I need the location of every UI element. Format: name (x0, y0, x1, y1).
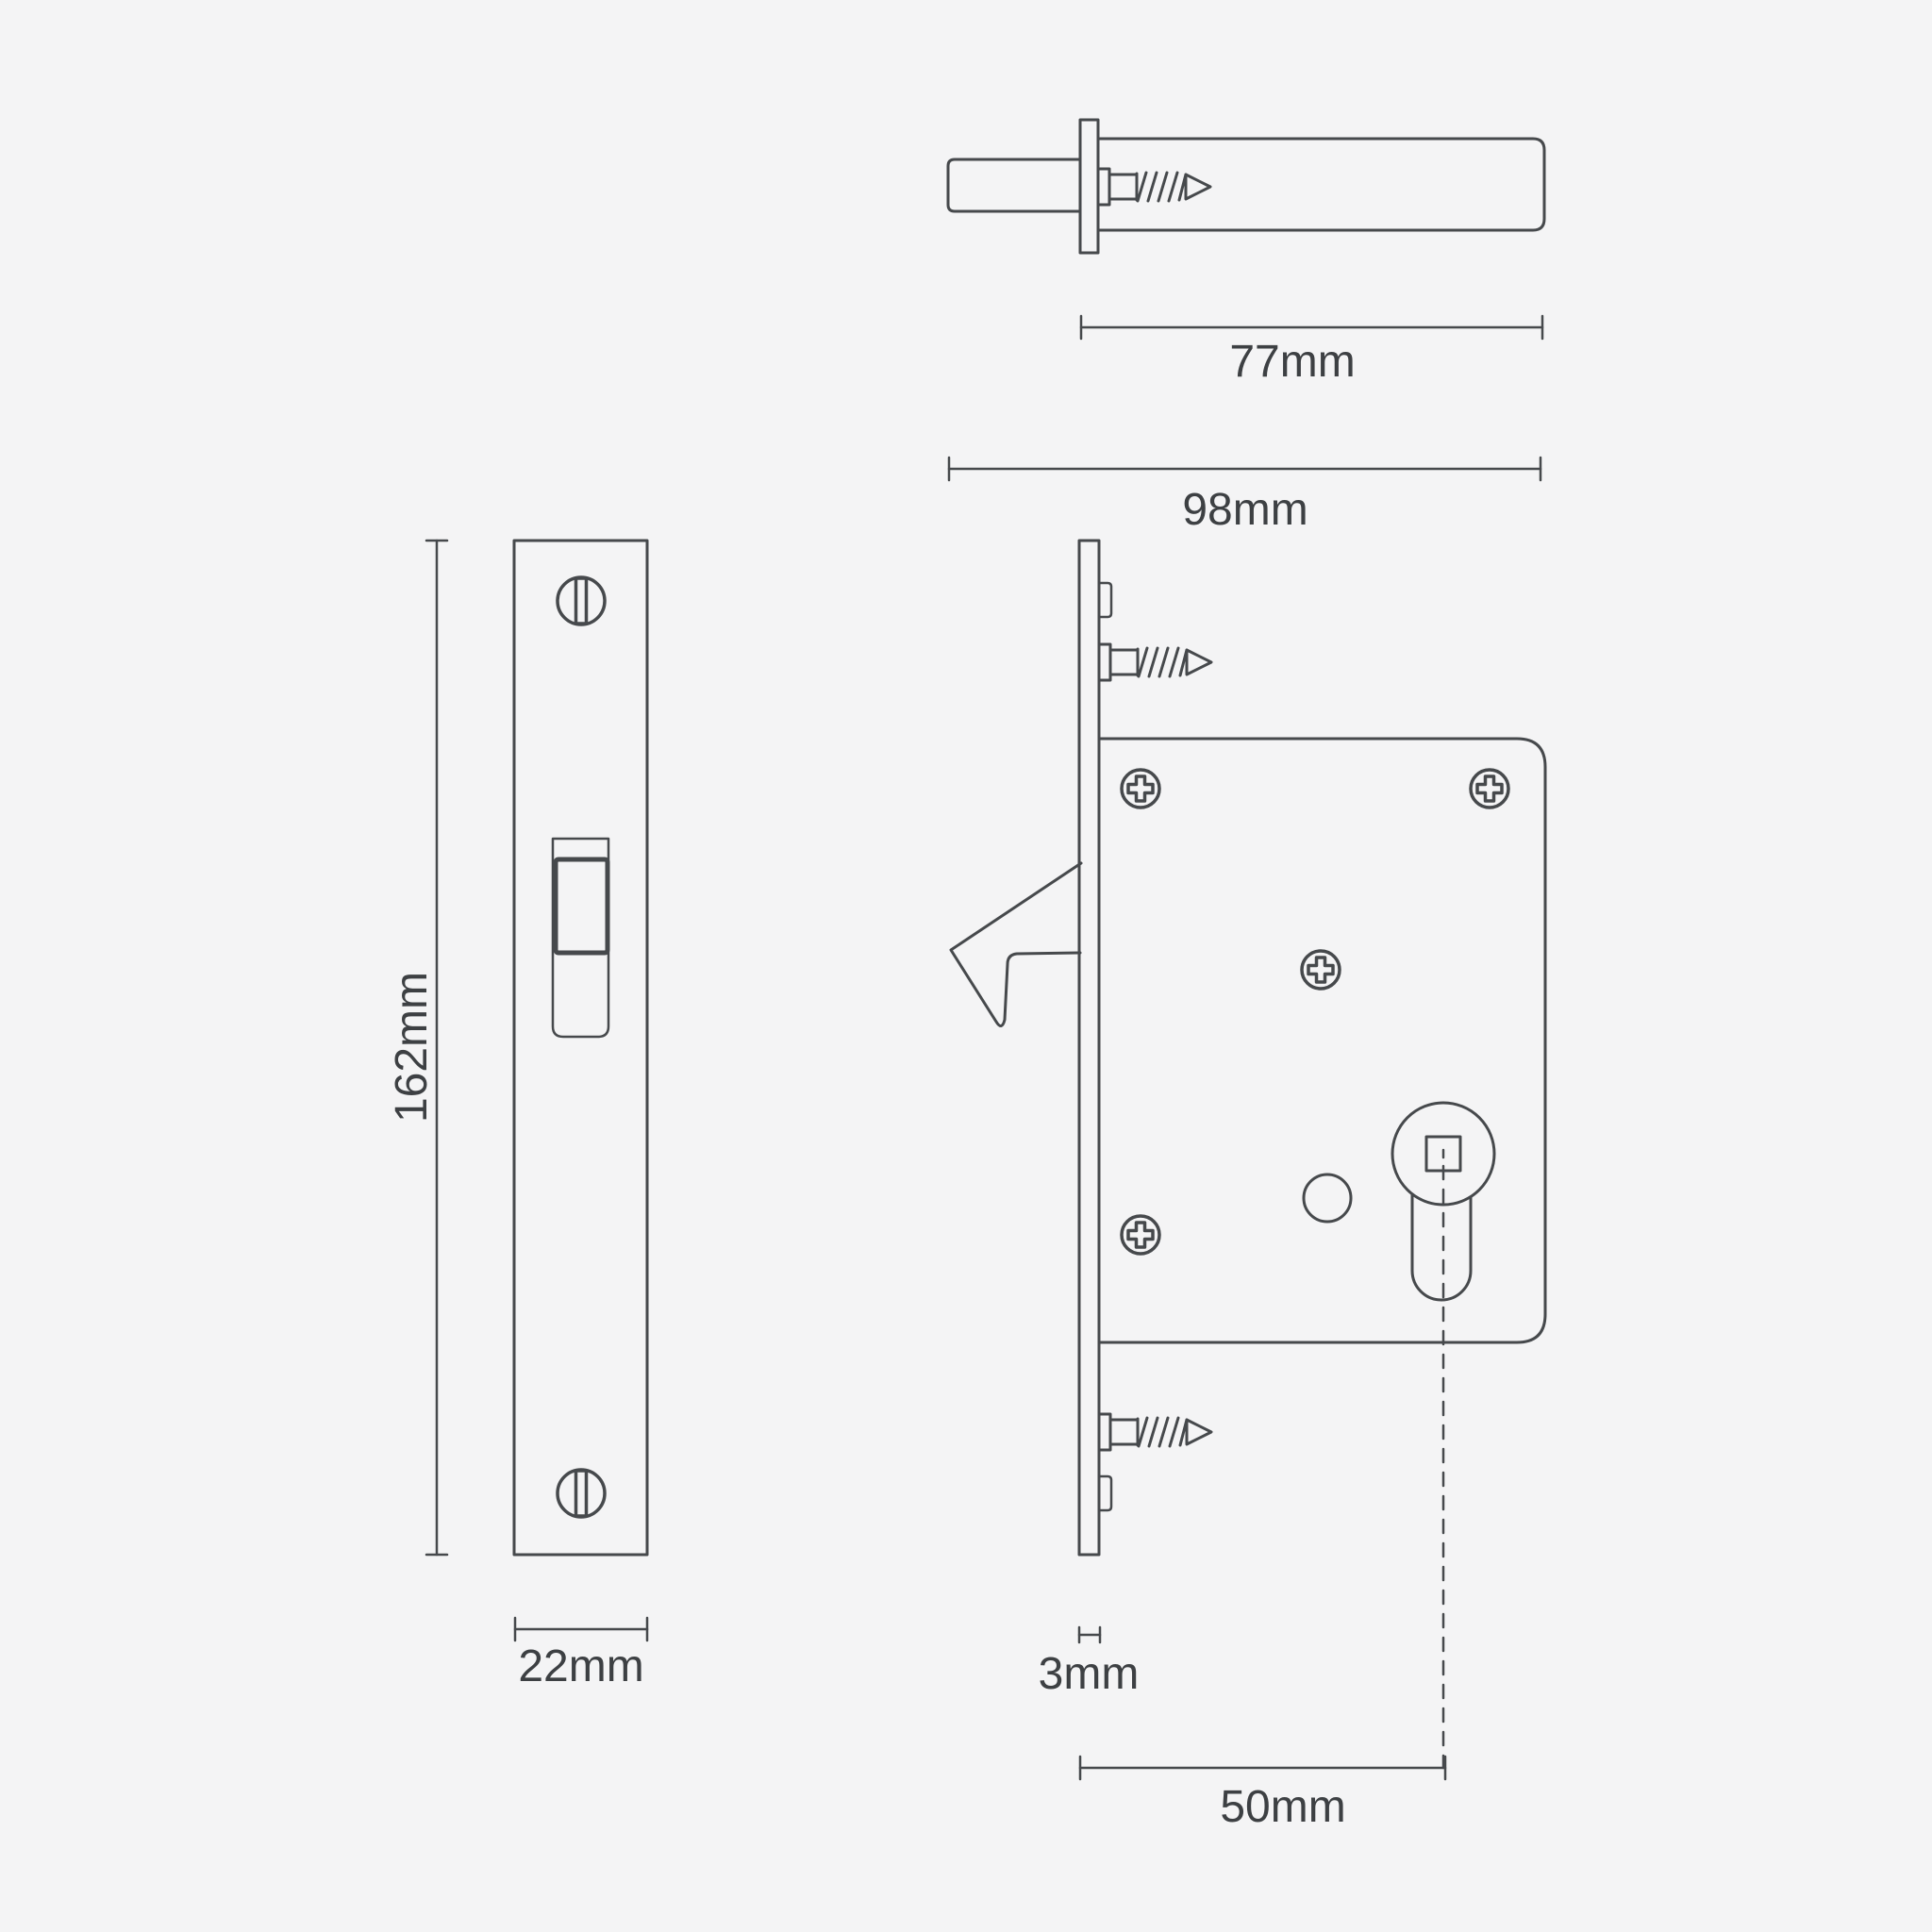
faceplate-outline (514, 541, 647, 1555)
phillips-screw-top-left-icon (1122, 770, 1159, 808)
top-tab (1099, 583, 1111, 617)
cylinder-barrel (1098, 139, 1544, 230)
fixing-screw-bottom-icon (1099, 1414, 1211, 1450)
fixing-screw-top-icon (1099, 644, 1211, 680)
cylinder-lower-lobe (1412, 1194, 1471, 1300)
phillips-screw-bottom-left-icon (1122, 1216, 1159, 1254)
dim-label-77mm: 77mm (1229, 337, 1355, 387)
dim-label-50mm: 50mm (1220, 1782, 1345, 1832)
hook-bolt-face (556, 859, 608, 953)
front-view-faceplate: 162mm 22mm (387, 541, 647, 1691)
dim-label-98mm: 98mm (1182, 485, 1307, 535)
dim-label-3mm: 3mm (1039, 1649, 1140, 1699)
phillips-screw-top-right-icon (1471, 770, 1508, 808)
dimension-backset: 50mm (1080, 1757, 1445, 1832)
bolt-cutout (553, 839, 608, 1037)
flange-plate (1080, 120, 1098, 253)
bottom-tab (1099, 1476, 1111, 1510)
dimension-faceplate-height: 162mm (387, 541, 447, 1555)
phillips-screw-center-icon (1302, 951, 1340, 989)
follower-hole (1304, 1174, 1351, 1222)
dimension-overall-length: 98mm (949, 458, 1541, 535)
dim-label-162mm: 162mm (387, 972, 437, 1123)
slotted-screw-bottom-icon (558, 1470, 605, 1517)
spindle-stub (948, 159, 1080, 211)
faceplate-edge (1079, 541, 1099, 1555)
lock-case-outline (1099, 739, 1545, 1342)
dim-label-22mm: 22mm (518, 1641, 643, 1691)
drawing-canvas: 77mm 98mm 162mm 22mm (0, 0, 1932, 1932)
dimension-faceplate-width: 22mm (515, 1618, 647, 1691)
dimension-faceplate-thickness: 3mm (1039, 1627, 1140, 1699)
hook-bolt-side (951, 863, 1081, 1026)
dimension-cylinder-length: 77mm (1081, 316, 1542, 387)
slotted-screw-top-icon (558, 577, 605, 625)
fixing-screw-icon (1098, 169, 1210, 205)
side-view-lock-body: 3mm 50mm (951, 541, 1545, 1832)
technical-drawing: 77mm 98mm 162mm 22mm (0, 0, 1932, 1932)
top-view-cylinder-fixing: 77mm 98mm (948, 120, 1544, 535)
